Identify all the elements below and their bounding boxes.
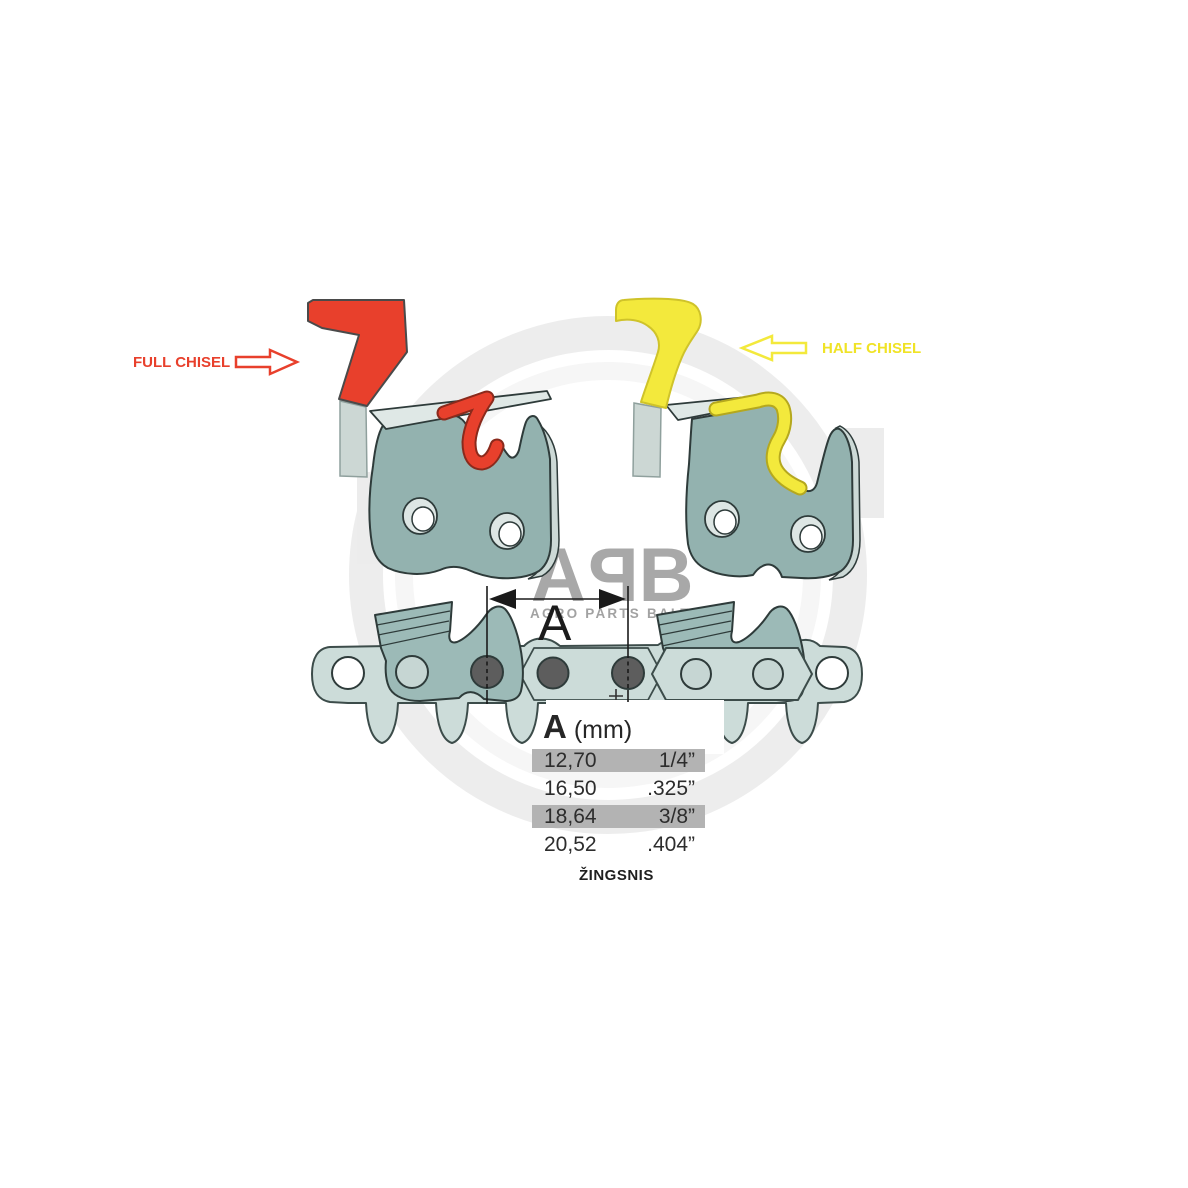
half-chisel-arrow: [742, 336, 806, 360]
pitch-caption: ŽINGSNIS: [579, 867, 654, 884]
half-chisel-label: HALF CHISEL: [822, 340, 921, 357]
chain-hole-left: [332, 657, 364, 689]
pitch-table-row: 16,50 .325”: [532, 777, 705, 800]
full-chisel-arrow: [236, 350, 297, 374]
pitch-table-row: 18,64 3/8”: [532, 805, 705, 828]
cutter-left-hole2: [499, 522, 521, 546]
pitch-inch-value: .404”: [647, 833, 695, 857]
pitch-mm-value: 12,70: [544, 749, 597, 773]
pitch-inch-value: 3/8”: [659, 805, 695, 829]
half-chisel-shape: [616, 299, 701, 408]
cutter-left-body: [369, 414, 551, 578]
chain-hole-right: [816, 657, 848, 689]
half-chisel-profile: [616, 299, 701, 477]
rivet-dark-2: [538, 658, 569, 689]
pitch-dimension-letter: A: [538, 598, 571, 648]
rivet-boss-3: [753, 659, 783, 689]
full-chisel-label: FULL CHISEL: [133, 354, 230, 371]
arrowhead-left: [489, 589, 516, 609]
pitch-inch-value: 1/4”: [659, 749, 695, 773]
cutter-right-body: [686, 397, 853, 578]
cutter-left-hole1: [412, 507, 434, 531]
half-chisel-shank: [633, 403, 661, 477]
chain-cutter-left: [375, 602, 523, 701]
table-header-symbol: A: [543, 710, 567, 743]
pitch-mm-value: 20,52: [544, 833, 597, 857]
arrowhead-right: [599, 589, 626, 609]
rivet-boss-1: [396, 656, 428, 688]
full-chisel-shape: [308, 300, 407, 406]
pitch-table-header: A (mm): [543, 710, 632, 745]
rivet-boss-2: [681, 659, 711, 689]
chainsaw-chain-diagram: [0, 0, 1188, 1188]
pitch-mm-value: 16,50: [544, 777, 597, 801]
pitch-table-row: 12,70 1/4”: [532, 749, 705, 772]
table-header-unit: (mm): [574, 716, 632, 745]
cutter-3d-full-chisel: [369, 391, 559, 579]
pitch-mm-value: 18,64: [544, 805, 597, 829]
full-chisel-shank: [340, 401, 367, 477]
tie-strap-right: [652, 648, 812, 700]
cutter-3d-half-chisel: [666, 396, 860, 580]
cutter-right-hole1: [714, 510, 736, 534]
pitch-inch-value: .325”: [647, 777, 695, 801]
cutter-right-hole2: [800, 525, 822, 549]
pitch-table-row: 20,52 .404”: [532, 833, 705, 856]
